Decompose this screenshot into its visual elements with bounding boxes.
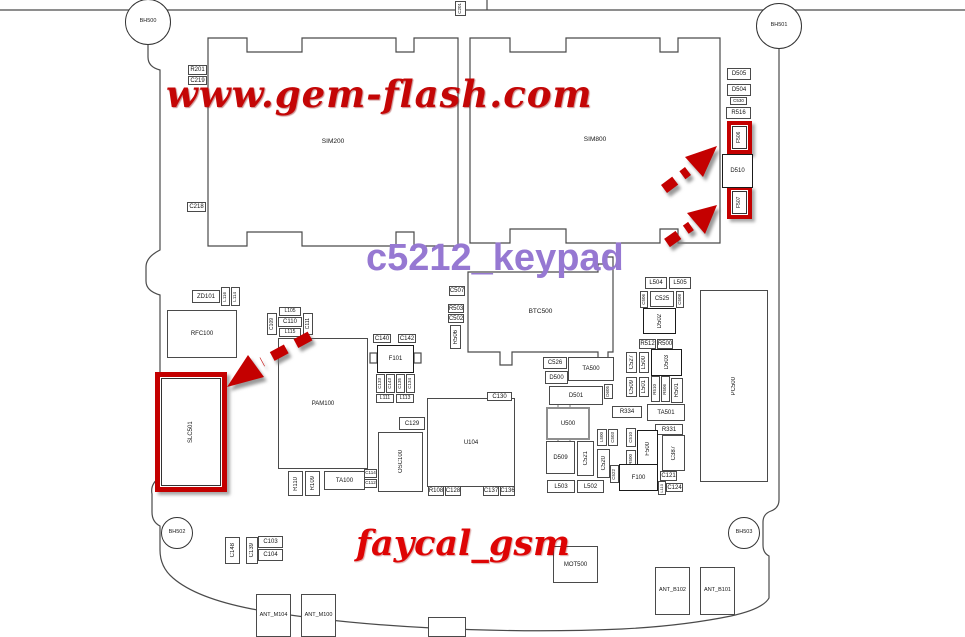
component-label: TA100 <box>336 478 353 484</box>
hole-bh503: BH503 <box>728 517 760 549</box>
component-label: C111 <box>306 318 311 329</box>
component-label: OSC100 <box>398 450 404 473</box>
hole-label: BH500 <box>140 19 157 25</box>
component-d509: D509 <box>546 441 575 474</box>
component-label: R501 <box>674 383 680 397</box>
component-label: L503 <box>554 484 567 490</box>
component-c142: C142 <box>398 334 416 343</box>
component-c143: C143 <box>386 374 395 393</box>
component-label: C508 <box>678 294 683 305</box>
component-ta500: TA500 <box>568 357 614 381</box>
component-r331: R331 <box>655 424 683 435</box>
component-ta100: TA100 <box>324 471 365 490</box>
component-label: PC500 <box>731 377 737 395</box>
component-btc500: BTC500 <box>468 272 613 352</box>
component-label: C148 <box>230 543 236 557</box>
component-label: D504 <box>732 87 746 93</box>
f101-tab-right <box>414 353 421 363</box>
component-label: SLC501 <box>161 378 221 486</box>
component-label: C110 <box>283 319 297 325</box>
component-label: TA501 <box>657 410 674 416</box>
watermark-c5212-keypad: c5212_keypad <box>366 237 624 280</box>
component-label: C522 <box>612 469 617 480</box>
component-label: C143 <box>388 378 393 389</box>
component-label: L113 <box>400 396 411 401</box>
component-label: R110 <box>293 477 299 491</box>
component-l500: L500 <box>597 429 607 446</box>
component-label: C520 <box>601 456 607 470</box>
component-d503: D503 <box>651 349 682 376</box>
component-r506: R506 <box>661 376 670 402</box>
component-d500: D500 <box>545 371 568 384</box>
component-f507: F507 <box>727 186 752 219</box>
component-label: D605 <box>606 386 611 397</box>
component-sim800: SIM800 <box>470 38 720 243</box>
component-label: C218 <box>189 204 203 210</box>
component-label: R506 <box>453 330 459 344</box>
component-label: D510 <box>730 168 744 174</box>
component-label: R510 <box>653 384 658 395</box>
component-l504: L504 <box>645 277 667 289</box>
component-l114: L114 <box>231 287 240 306</box>
component-label: D509 <box>553 455 567 461</box>
component-u104: U104 <box>427 398 515 487</box>
component-r516: R516 <box>726 107 751 119</box>
component-label: C112 <box>365 481 375 486</box>
component-f500: F500 <box>637 430 658 468</box>
component-c104: C104 <box>258 549 283 561</box>
component-c110: C110 <box>278 317 302 327</box>
component-label: ANT_B102 <box>659 588 686 594</box>
component-label: L110 <box>660 484 664 493</box>
component-u500: U500 <box>546 407 590 440</box>
component-label: C130 <box>492 394 506 400</box>
component-label: F100 <box>632 475 646 481</box>
component-label: C506 <box>642 294 647 305</box>
component-label: L115 <box>285 330 296 335</box>
hole-bh502: BH502 <box>161 517 193 549</box>
component-sim200: SIM200 <box>208 38 458 246</box>
component-osc100: OSC100 <box>378 432 423 492</box>
component-label: L504 <box>649 280 662 286</box>
component-label: C104 <box>263 552 277 558</box>
hole-label: BH503 <box>736 530 753 536</box>
component-c128: C128 <box>445 486 461 496</box>
component-label: C509 <box>629 380 635 394</box>
component-label: C103 <box>263 539 277 545</box>
component-label: C124 <box>667 485 681 491</box>
component-label: C502 <box>449 316 463 322</box>
component-label: L500 <box>641 356 647 369</box>
component-ta501: TA501 <box>647 404 685 421</box>
component-c137: C137 <box>483 486 499 496</box>
component-r108: R108 <box>428 486 444 496</box>
component-c140: C140 <box>373 334 391 343</box>
component-label: U500 <box>561 421 575 427</box>
component-label: F500 <box>645 442 651 456</box>
component-c135: C135 <box>396 374 405 393</box>
component-label: C139 <box>249 543 255 557</box>
component-slc501: SLC501 <box>155 372 227 492</box>
component-label: R512 <box>640 341 654 347</box>
component-label: F101 <box>389 356 403 362</box>
component-c148: C148 <box>225 537 240 564</box>
component-l505: L505 <box>669 277 691 289</box>
component-label: D502 <box>657 314 663 328</box>
component-label: C135 <box>398 378 403 389</box>
component-label: R516 <box>731 110 745 116</box>
component-c201: C201 <box>455 1 466 16</box>
component-c134: C134 <box>406 374 415 393</box>
component-label: C134 <box>408 378 413 389</box>
component-label: PAM100 <box>312 401 335 407</box>
component-l105: L105 <box>279 307 301 316</box>
component-label: SIM800 <box>584 137 606 144</box>
component-label: C521 <box>583 451 589 465</box>
component-c129: C129 <box>399 417 425 430</box>
component-c522: C522 <box>610 465 619 483</box>
component-f100: F100 <box>619 464 658 491</box>
component-c112: C112 <box>364 479 377 488</box>
component-l503: L503 <box>547 480 575 493</box>
component-d505: D505 <box>727 68 751 80</box>
component-c509: C509 <box>626 377 637 397</box>
component-c136: C136 <box>500 486 515 496</box>
pcb-layout-diagram: SIM200SIM800BTC500RFC100PAM100U104OSC100… <box>0 0 965 637</box>
component-label: TA500 <box>582 366 599 372</box>
component-ant_m104: ANT_M104 <box>256 594 291 637</box>
component-label: C525 <box>655 296 669 302</box>
component-r501: R501 <box>671 378 683 403</box>
component-label: C142 <box>400 336 414 342</box>
component-zd101: ZD101 <box>192 290 220 303</box>
hole-label: BH502 <box>169 530 186 536</box>
component-label: U104 <box>464 440 478 446</box>
component-label: C387 <box>671 446 677 460</box>
hole-bh501: BH501 <box>756 3 802 49</box>
component-l502: L502 <box>577 480 604 493</box>
component-label: RFC100 <box>191 331 213 337</box>
component-label: R334 <box>620 409 634 415</box>
component-c521: C521 <box>577 441 594 476</box>
component-c130: C130 <box>487 392 512 401</box>
component-ant_b102: ANT_B102 <box>655 567 690 615</box>
component-label: D505 <box>732 71 746 77</box>
component-c530: C530 <box>730 97 747 105</box>
component-label: C109 <box>270 318 275 330</box>
component-label: C137 <box>484 488 498 494</box>
component-c527: C527 <box>626 352 637 373</box>
component-l110: L110 <box>658 481 666 495</box>
component-c387: C387 <box>662 435 685 471</box>
component-c114: C114 <box>364 469 377 478</box>
component-label: C201 <box>458 3 463 14</box>
component-label: ZD101 <box>197 294 215 300</box>
component-label: C121 <box>661 473 675 479</box>
component-c508: C508 <box>676 291 684 308</box>
component-label: ANT_M104 <box>260 613 288 619</box>
component-c502: C502 <box>448 314 464 323</box>
component-label: L105 <box>284 309 295 314</box>
component-c111: C111 <box>303 313 313 335</box>
component-label: D501 <box>569 393 583 399</box>
component-label: R109 <box>310 476 316 490</box>
component-l113: L113 <box>396 394 414 403</box>
component-l500: L500 <box>639 352 649 373</box>
component-f101: F101 <box>377 345 414 373</box>
component-c139: C139 <box>246 537 258 564</box>
component-label: L114 <box>233 292 238 302</box>
component-label: L505 <box>673 280 686 286</box>
component-c503: C503 <box>608 429 618 446</box>
component-ant_b101: ANT_B101 <box>700 567 735 615</box>
component-l115: L115 <box>279 328 301 337</box>
component-label: F507 <box>732 191 747 214</box>
component-label: ANT_B101 <box>704 588 731 594</box>
component-c124: C124 <box>666 483 683 492</box>
component-label: L502 <box>584 484 597 490</box>
component-box <box>428 617 466 637</box>
component-d501: D501 <box>549 386 603 405</box>
component-c507: C507 <box>449 286 465 296</box>
component-label: C140 <box>375 336 389 342</box>
component-c121: C121 <box>660 471 677 481</box>
component-label: C507 <box>450 288 464 294</box>
component-label: C128 <box>446 488 460 494</box>
component-d510: D510 <box>722 154 753 188</box>
component-d504: D504 <box>727 84 751 96</box>
component-pam100: PAM100 <box>278 338 368 469</box>
component-r506: R506 <box>450 325 461 349</box>
component-label: D503 <box>664 355 670 369</box>
component-label: C527 <box>629 355 635 369</box>
component-label: BTC500 <box>529 309 553 316</box>
component-label: C136 <box>500 488 514 494</box>
component-label: L116 <box>223 292 228 302</box>
component-l116: L116 <box>221 287 230 306</box>
component-rfc100: RFC100 <box>167 310 237 358</box>
component-r110: R110 <box>288 471 303 496</box>
component-label: R500 <box>629 454 634 465</box>
component-label: C530 <box>733 99 744 104</box>
component-label: ANT_M100 <box>305 613 333 619</box>
component-c109: C109 <box>267 313 277 335</box>
component-r334: R334 <box>612 406 642 418</box>
watermark-gem-flash: www.gem-flash.com <box>166 72 593 116</box>
component-label: R506 <box>663 384 668 395</box>
component-r510: R510 <box>651 376 660 402</box>
component-c103: C103 <box>258 536 283 548</box>
component-label: C133 <box>378 378 383 389</box>
component-pc500: PC500 <box>700 290 768 482</box>
component-r500: R500 <box>657 339 673 349</box>
f101-tab-left <box>370 353 377 363</box>
component-f506: F506 <box>727 121 752 154</box>
component-label: F506 <box>732 126 747 149</box>
component-label: C129 <box>405 421 419 427</box>
component-label: C510 <box>629 432 634 443</box>
hole-label: BH501 <box>771 23 788 29</box>
component-label: C503 <box>611 432 616 443</box>
component-d605: D605 <box>604 384 613 399</box>
component-c218: C218 <box>187 202 206 212</box>
component-label: L111 <box>380 396 390 401</box>
component-label: SIM200 <box>322 139 344 146</box>
component-ant_m100: ANT_M100 <box>301 594 336 637</box>
component-label: C114 <box>365 471 375 476</box>
component-label: R108 <box>429 488 443 494</box>
component-label: R500 <box>658 341 672 347</box>
component-c133: C133 <box>376 374 385 393</box>
component-c525: C525 <box>650 291 674 307</box>
component-c506: C506 <box>640 291 648 308</box>
component-c510: C510 <box>626 428 636 447</box>
component-c526: C526 <box>543 357 567 369</box>
component-r109: R109 <box>305 471 320 496</box>
component-label: L500 <box>600 432 605 442</box>
component-label: L501 <box>641 380 647 393</box>
component-l501: L501 <box>639 377 649 397</box>
component-label: D500 <box>549 375 563 381</box>
component-l111: L111 <box>376 394 394 403</box>
component-c520: C520 <box>597 449 610 478</box>
component-label: C526 <box>548 360 562 366</box>
component-r512: R512 <box>639 339 656 349</box>
hole-bh500: BH500 <box>125 0 171 45</box>
component-label: R331 <box>662 427 676 433</box>
watermark-faycal-gsm: faycal_gsm <box>356 523 570 564</box>
component-d502: D502 <box>643 308 676 334</box>
component-r503: R503 <box>448 304 464 313</box>
component-label: R503 <box>449 306 463 312</box>
